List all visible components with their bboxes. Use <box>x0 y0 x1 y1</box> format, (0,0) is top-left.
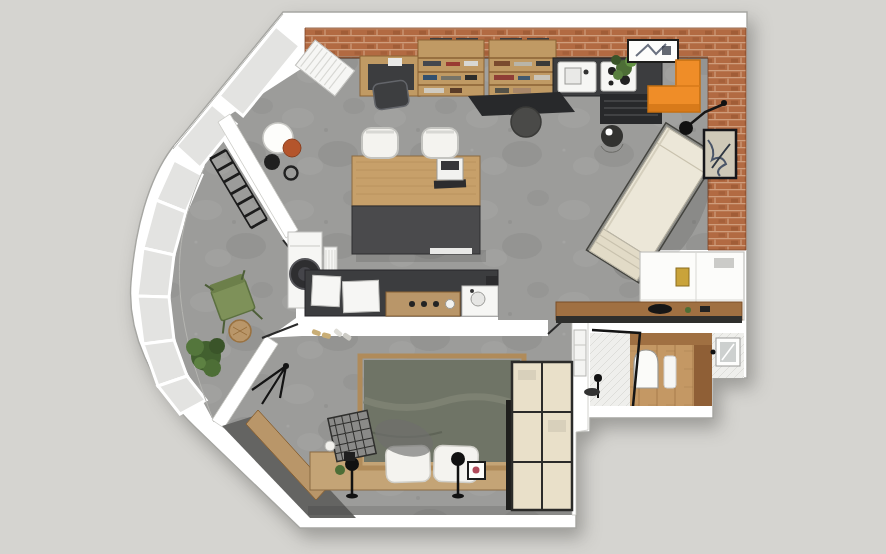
small-plant <box>335 465 345 475</box>
plan-svg <box>0 0 886 554</box>
bookshelf-right <box>489 38 556 96</box>
wardrobe <box>506 362 572 510</box>
terracotta-stool <box>283 139 301 157</box>
floorplan-image <box>0 0 886 554</box>
window-handle <box>711 350 716 355</box>
closet-shelf-item <box>714 258 734 268</box>
black-bag <box>648 304 672 314</box>
bookshelf-left <box>418 38 484 96</box>
gold-mirror-panel <box>676 268 689 286</box>
white-cabinet-box-2 <box>342 280 379 312</box>
round-pouf <box>511 107 541 137</box>
console-table <box>556 302 742 323</box>
wood-vanity <box>694 345 712 406</box>
bath-mat <box>584 388 600 396</box>
wall-frame-top <box>628 40 678 62</box>
black-floor-lamp <box>264 154 280 170</box>
white-towel <box>664 356 676 388</box>
work-table <box>352 156 486 262</box>
desk-chair-black <box>372 80 409 110</box>
bedroom-window <box>574 330 586 376</box>
wall-art-right <box>704 130 736 178</box>
shower-head <box>594 374 602 382</box>
picture-frame-ledge <box>468 462 485 479</box>
faucet <box>584 70 589 75</box>
white-cabinet-box-1 <box>311 275 341 306</box>
laptop <box>434 158 466 189</box>
kitchen-counter <box>305 270 498 316</box>
wood-stool <box>229 320 251 342</box>
